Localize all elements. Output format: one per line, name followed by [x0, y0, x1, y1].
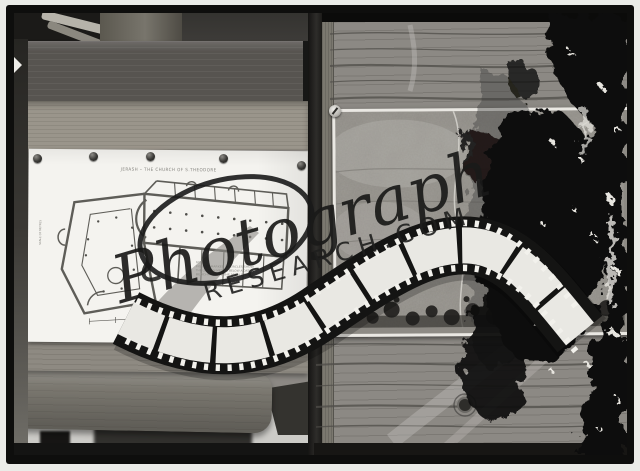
- plan-columns: [84, 209, 283, 294]
- plan-side-label: SCALE OF METRES: [38, 220, 42, 245]
- thumbtack: [219, 154, 228, 163]
- upper-wood-board: [14, 101, 308, 150]
- bottom-shadow-bar: [14, 443, 308, 455]
- thumbtack: [33, 154, 42, 163]
- plan-note: NOTE — FIGURES MARKED IN CIRCLES SHOW TH…: [195, 260, 255, 277]
- thumbtack: [146, 152, 155, 161]
- plan-sheet: JERASH – THE CHURCH OF S.THEODORE: [27, 149, 308, 344]
- thumbtack: [297, 161, 306, 170]
- aerial-photo-image: [335, 110, 625, 328]
- thumbtack: [148, 331, 157, 340]
- upper-wood-rail: [18, 41, 303, 101]
- easel-ledge: [15, 369, 272, 434]
- top-shadow-gap: [322, 13, 627, 22]
- aerial-photograph: [332, 107, 627, 337]
- photo-pin: [329, 105, 341, 117]
- thumbtack: [89, 152, 98, 161]
- plan-drawing: JERASH – THE CHURCH OF S.THEODORE: [27, 149, 308, 344]
- archival-photograph: JERASH – THE CHURCH OF S.THEODORE: [0, 0, 640, 471]
- plan-walls: [57, 180, 288, 326]
- photo-content: JERASH – THE CHURCH OF S.THEODORE: [14, 13, 627, 455]
- easel-left-post: [14, 39, 28, 455]
- thumbtack: [298, 335, 307, 344]
- bottom-shadow-bar: [314, 443, 627, 455]
- board-seam: [308, 13, 322, 455]
- svg-text:BENCHMARK IN THE MAIN STREET: BENCHMARK IN THE MAIN STREET: [196, 272, 254, 277]
- plan-title: JERASH – THE CHURCH OF S.THEODORE: [120, 167, 217, 174]
